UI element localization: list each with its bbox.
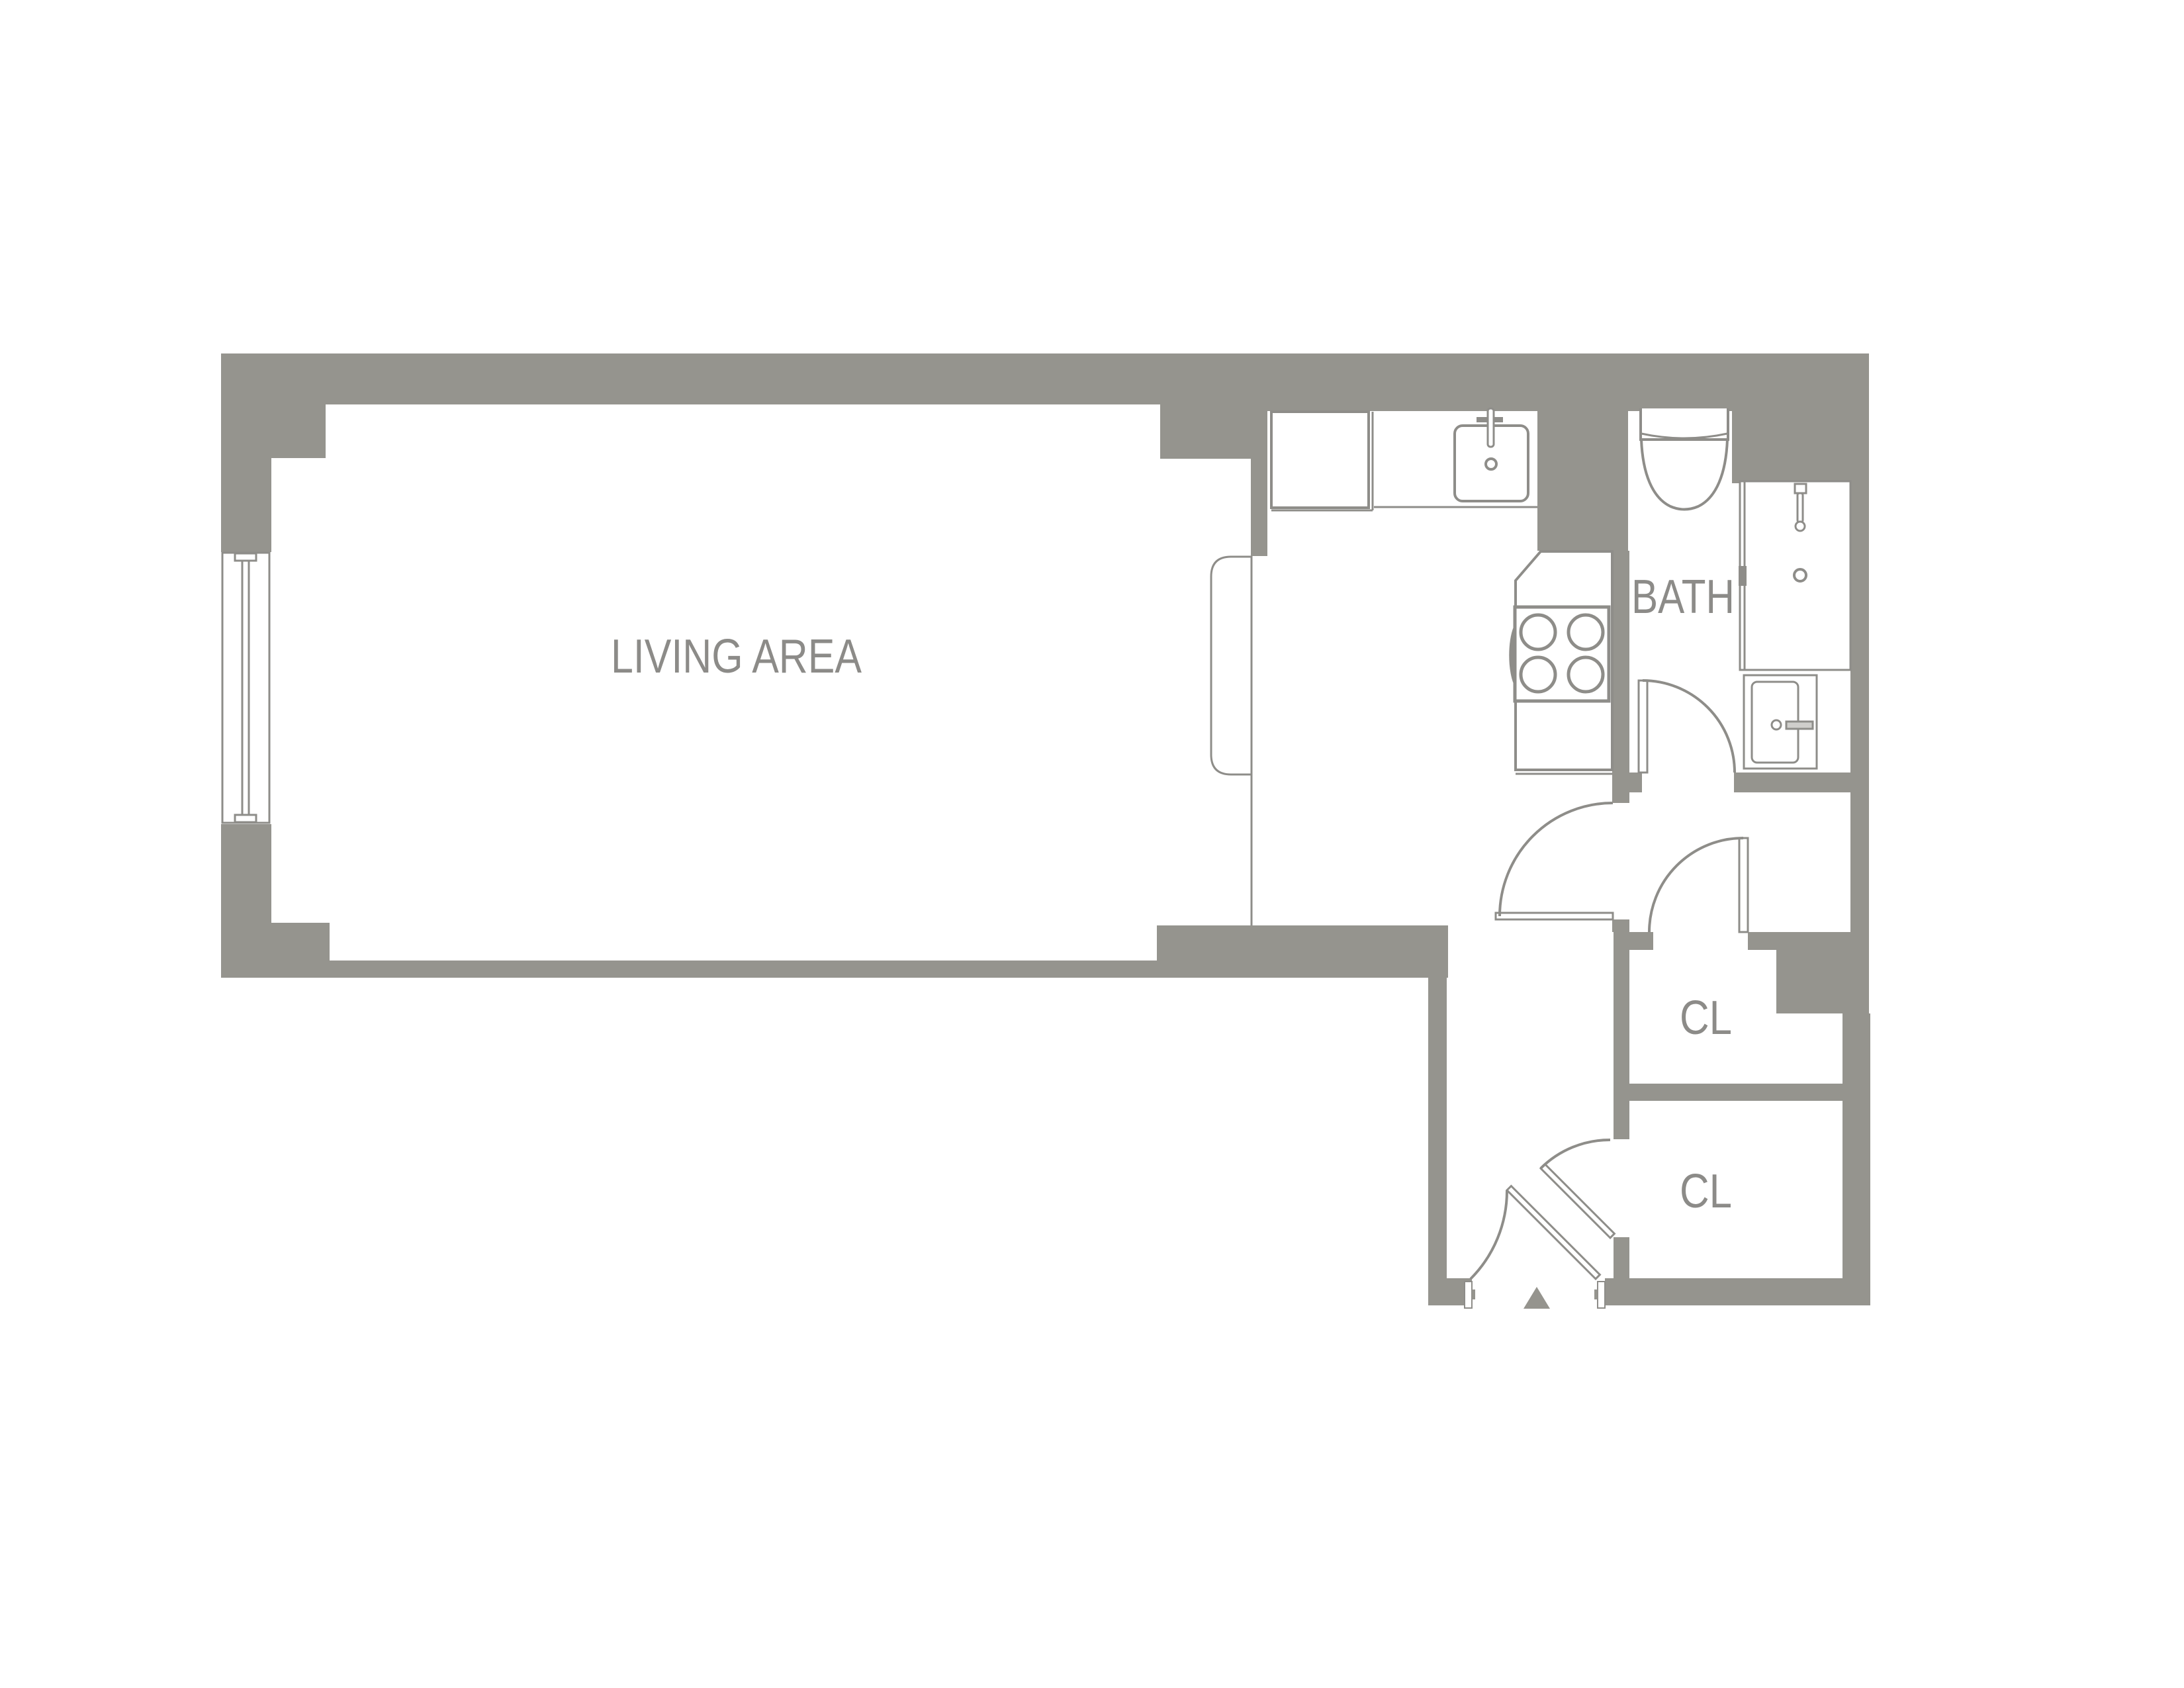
svg-text:CL: CL bbox=[1680, 1165, 1732, 1218]
svg-text:CL: CL bbox=[1680, 992, 1732, 1045]
svg-text:LIVING AREA: LIVING AREA bbox=[611, 630, 862, 683]
svg-text:BATH: BATH bbox=[1631, 571, 1735, 624]
